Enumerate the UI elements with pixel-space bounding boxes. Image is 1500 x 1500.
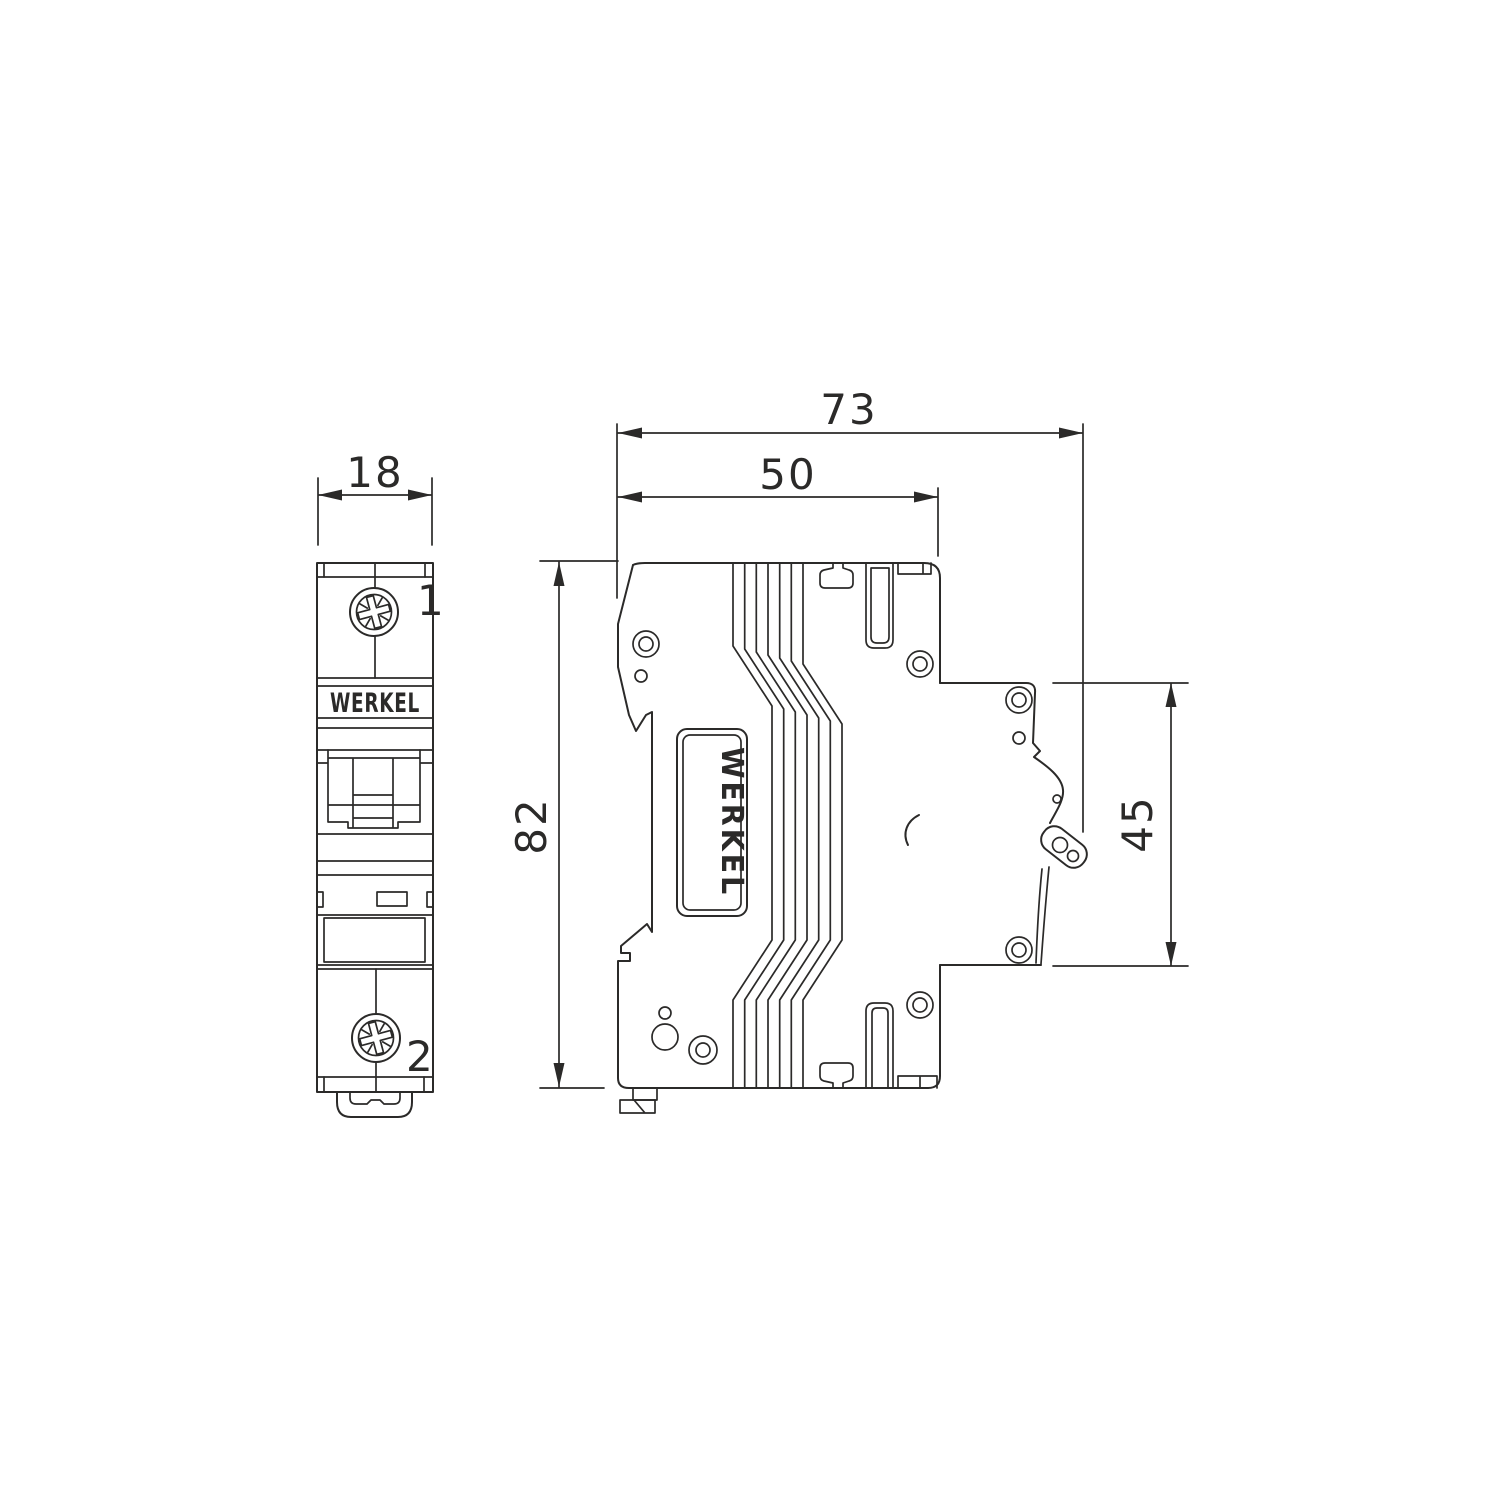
dimension-73-label: 73 — [820, 385, 877, 434]
side-toggle-lever — [1036, 821, 1092, 964]
terminal-label-1: 1 — [417, 576, 444, 625]
side-rivets — [633, 631, 1061, 1064]
dimension-50-label: 50 — [759, 450, 816, 499]
terminal-screw-2 — [352, 1014, 400, 1062]
front-view: WERKEL 1 2 — [317, 563, 444, 1117]
side-body-outline — [633, 563, 940, 683]
dimension-50: 50 — [618, 450, 938, 556]
drawing-canvas: WERKEL 1 2 — [0, 0, 1500, 1500]
dimension-82-label: 82 — [507, 797, 556, 854]
side-right-lower-edge — [928, 965, 940, 1088]
front-din-clip — [337, 1092, 412, 1117]
front-toggle-mechanism — [317, 750, 433, 828]
dimension-18-label: 18 — [346, 448, 403, 497]
dimension-18: 18 — [318, 448, 432, 545]
front-label-window — [317, 892, 433, 907]
side-bottom-slots — [820, 1003, 937, 1088]
front-recessed-panel — [324, 918, 425, 962]
side-din-clip-slider — [620, 1088, 657, 1113]
dimension-82: 82 — [507, 561, 618, 1088]
terminal-screw-1 — [350, 588, 398, 636]
dimension-73: 73 — [617, 385, 1083, 832]
side-brand-logo: WERKEL — [714, 747, 749, 897]
side-view: WERKEL — [618, 563, 1092, 1113]
dimension-45: 45 — [1053, 683, 1188, 966]
terminal-label-2: 2 — [406, 1032, 433, 1081]
side-top-slots — [820, 563, 931, 648]
side-brand-plate: WERKEL — [677, 729, 749, 916]
side-mould-mark — [905, 815, 919, 845]
dimension-45-label: 45 — [1113, 795, 1162, 852]
breaker-dimensional-drawing: WERKEL 1 2 — [0, 0, 1500, 1500]
front-brand-logo: WERKEL — [330, 688, 420, 719]
